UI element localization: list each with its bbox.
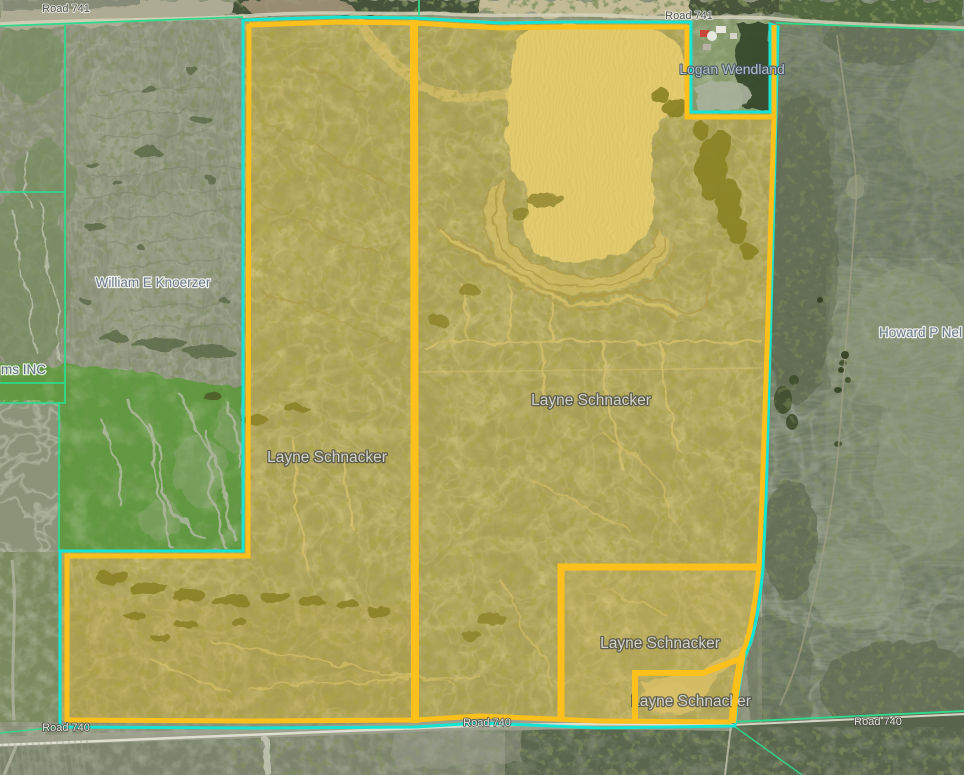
svg-text:Logan Wendland: Logan Wendland — [679, 61, 785, 77]
svg-text:Layne Schnacker: Layne Schnacker — [267, 449, 387, 466]
svg-text:William E Knoerzer: William E Knoerzer — [96, 275, 211, 290]
svg-text:Road 740: Road 740 — [854, 716, 902, 728]
svg-text:ms INC: ms INC — [1, 362, 46, 377]
svg-text:Road 740: Road 740 — [463, 717, 511, 729]
svg-text:Layne Schnacker: Layne Schnacker — [600, 635, 720, 652]
svg-text:Road 741: Road 741 — [42, 3, 90, 15]
svg-text:Road 740: Road 740 — [42, 722, 90, 734]
svg-text:Howard P Nel: Howard P Nel — [879, 325, 962, 340]
svg-text:Layne Schnacker: Layne Schnacker — [531, 392, 651, 409]
svg-text:Road 741: Road 741 — [665, 10, 713, 22]
